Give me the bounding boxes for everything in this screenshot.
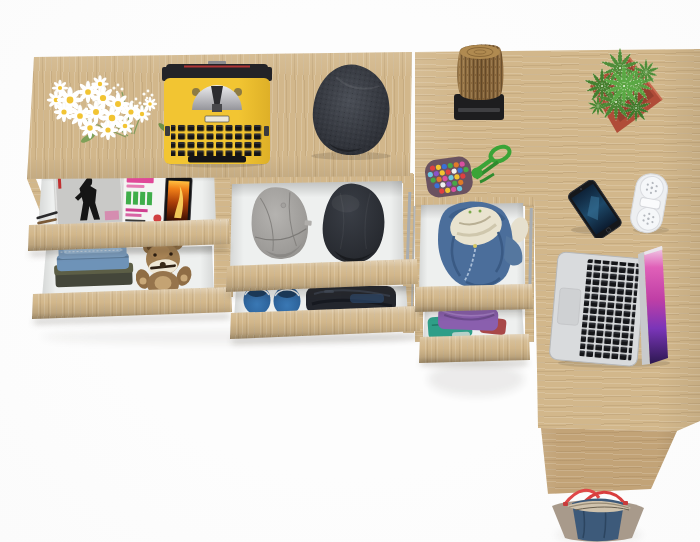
flowers (36, 42, 176, 152)
gray-cap (242, 184, 316, 270)
bead-pouch-graphic (420, 138, 518, 198)
smartphone-graphic (565, 180, 625, 238)
typewriter (158, 56, 276, 168)
gray-cap-graphic (242, 184, 316, 270)
desk-side-panel (541, 428, 677, 494)
drawer-phone-graphic (158, 174, 198, 228)
drawer-right-1-front-shadow (417, 310, 531, 314)
potted-plant (578, 40, 673, 140)
laptop (548, 244, 700, 370)
blue-hoodie (420, 196, 532, 292)
flat-cap-graphic (301, 60, 401, 160)
hoodie-graphic (420, 196, 532, 292)
tote-bag (545, 486, 650, 542)
typewriter-graphic (158, 56, 276, 168)
headphones-graphic (626, 172, 676, 236)
black-cap (312, 180, 394, 272)
shadow-under-right-drawers (428, 362, 524, 396)
smartphone (565, 180, 625, 238)
flowers-graphic (36, 42, 176, 152)
tote-bag-graphic (545, 486, 650, 542)
drawer-phone (158, 174, 198, 228)
bead-pouch (420, 138, 518, 198)
product-photo-desk-scene (0, 0, 700, 542)
headphones (626, 172, 676, 236)
drawer-right-2-front-shadow (421, 361, 527, 365)
plant-graphic (578, 40, 673, 140)
laptop-graphic (548, 244, 700, 370)
log-graphic (452, 42, 508, 124)
log-stool (452, 42, 508, 124)
drawer-right-2-front (419, 334, 530, 363)
flat-cap (301, 60, 401, 160)
drawer-right-1-front (415, 284, 533, 312)
black-cap-graphic (312, 180, 394, 272)
